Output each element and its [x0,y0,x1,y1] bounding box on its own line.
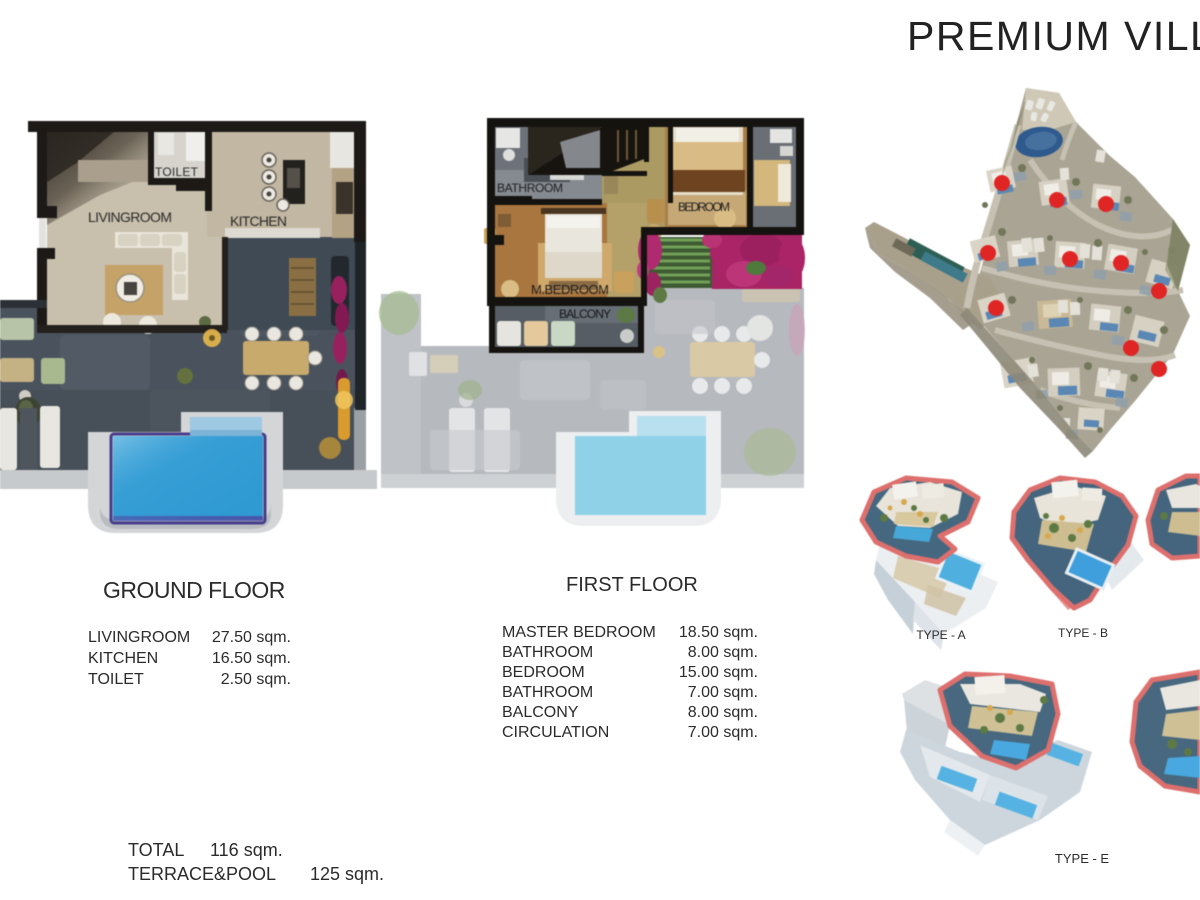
svg-text:M.BEDROOM: M.BEDROOM [531,282,609,297]
svg-text:LIVINGROOM: LIVINGROOM [88,209,172,225]
svg-text:BALCONY: BALCONY [559,307,611,321]
svg-text:BATHROOM: BATHROOM [497,181,563,195]
svg-text:TOILET: TOILET [155,165,199,179]
svg-text:KITCHEN: KITCHEN [230,213,287,229]
svg-text:BEDROOM: BEDROOM [678,200,730,214]
